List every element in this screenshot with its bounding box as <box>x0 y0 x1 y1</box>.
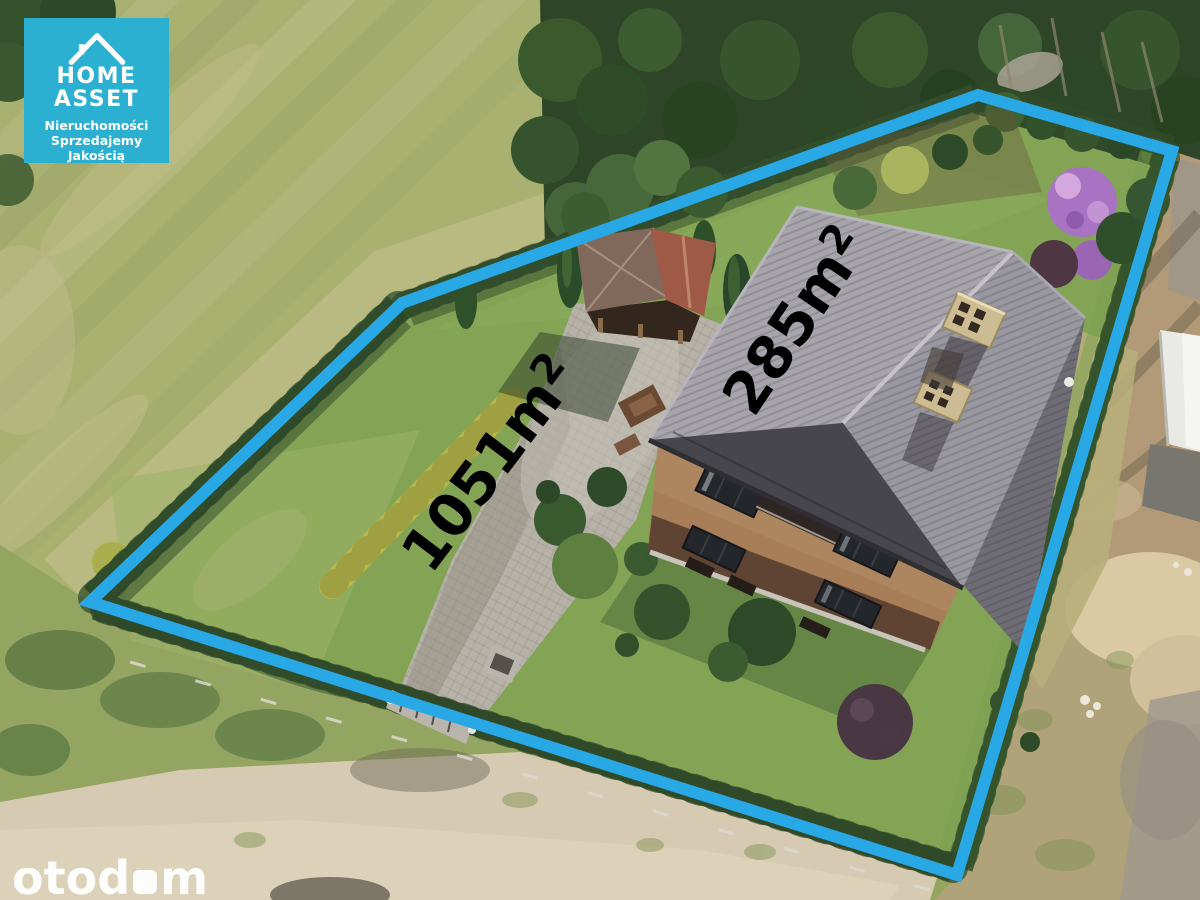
watermark-text-suffix: m <box>160 851 208 900</box>
aerial-property-photo: 285m2 1051m2 HOME ASSET Nieruchomości Sp… <box>0 0 1200 900</box>
agency-logo: HOME ASSET Nieruchomości Sprzedajemy Jak… <box>24 18 169 163</box>
agency-name-line2: ASSET <box>54 89 139 112</box>
satellite-dish <box>1064 377 1074 387</box>
purple-leaf-tree <box>837 684 913 760</box>
agency-name-line1: HOME <box>56 66 136 89</box>
tree-shadow-on-sand <box>350 748 490 792</box>
agency-tagline-line2: Sprzedajemy <box>45 133 149 148</box>
lime-bush <box>881 146 929 194</box>
agency-tagline-line1: Nieruchomości <box>45 118 149 133</box>
aerial-scene: 285m2 1051m2 <box>0 0 1200 900</box>
watermark-text-prefix: otod <box>12 851 130 900</box>
house-roof-chimney-icon <box>55 29 139 65</box>
portal-watermark: otodm <box>12 851 208 900</box>
agency-tagline-line3: Jakością <box>45 148 149 163</box>
watermark-square-glyph <box>133 870 157 894</box>
